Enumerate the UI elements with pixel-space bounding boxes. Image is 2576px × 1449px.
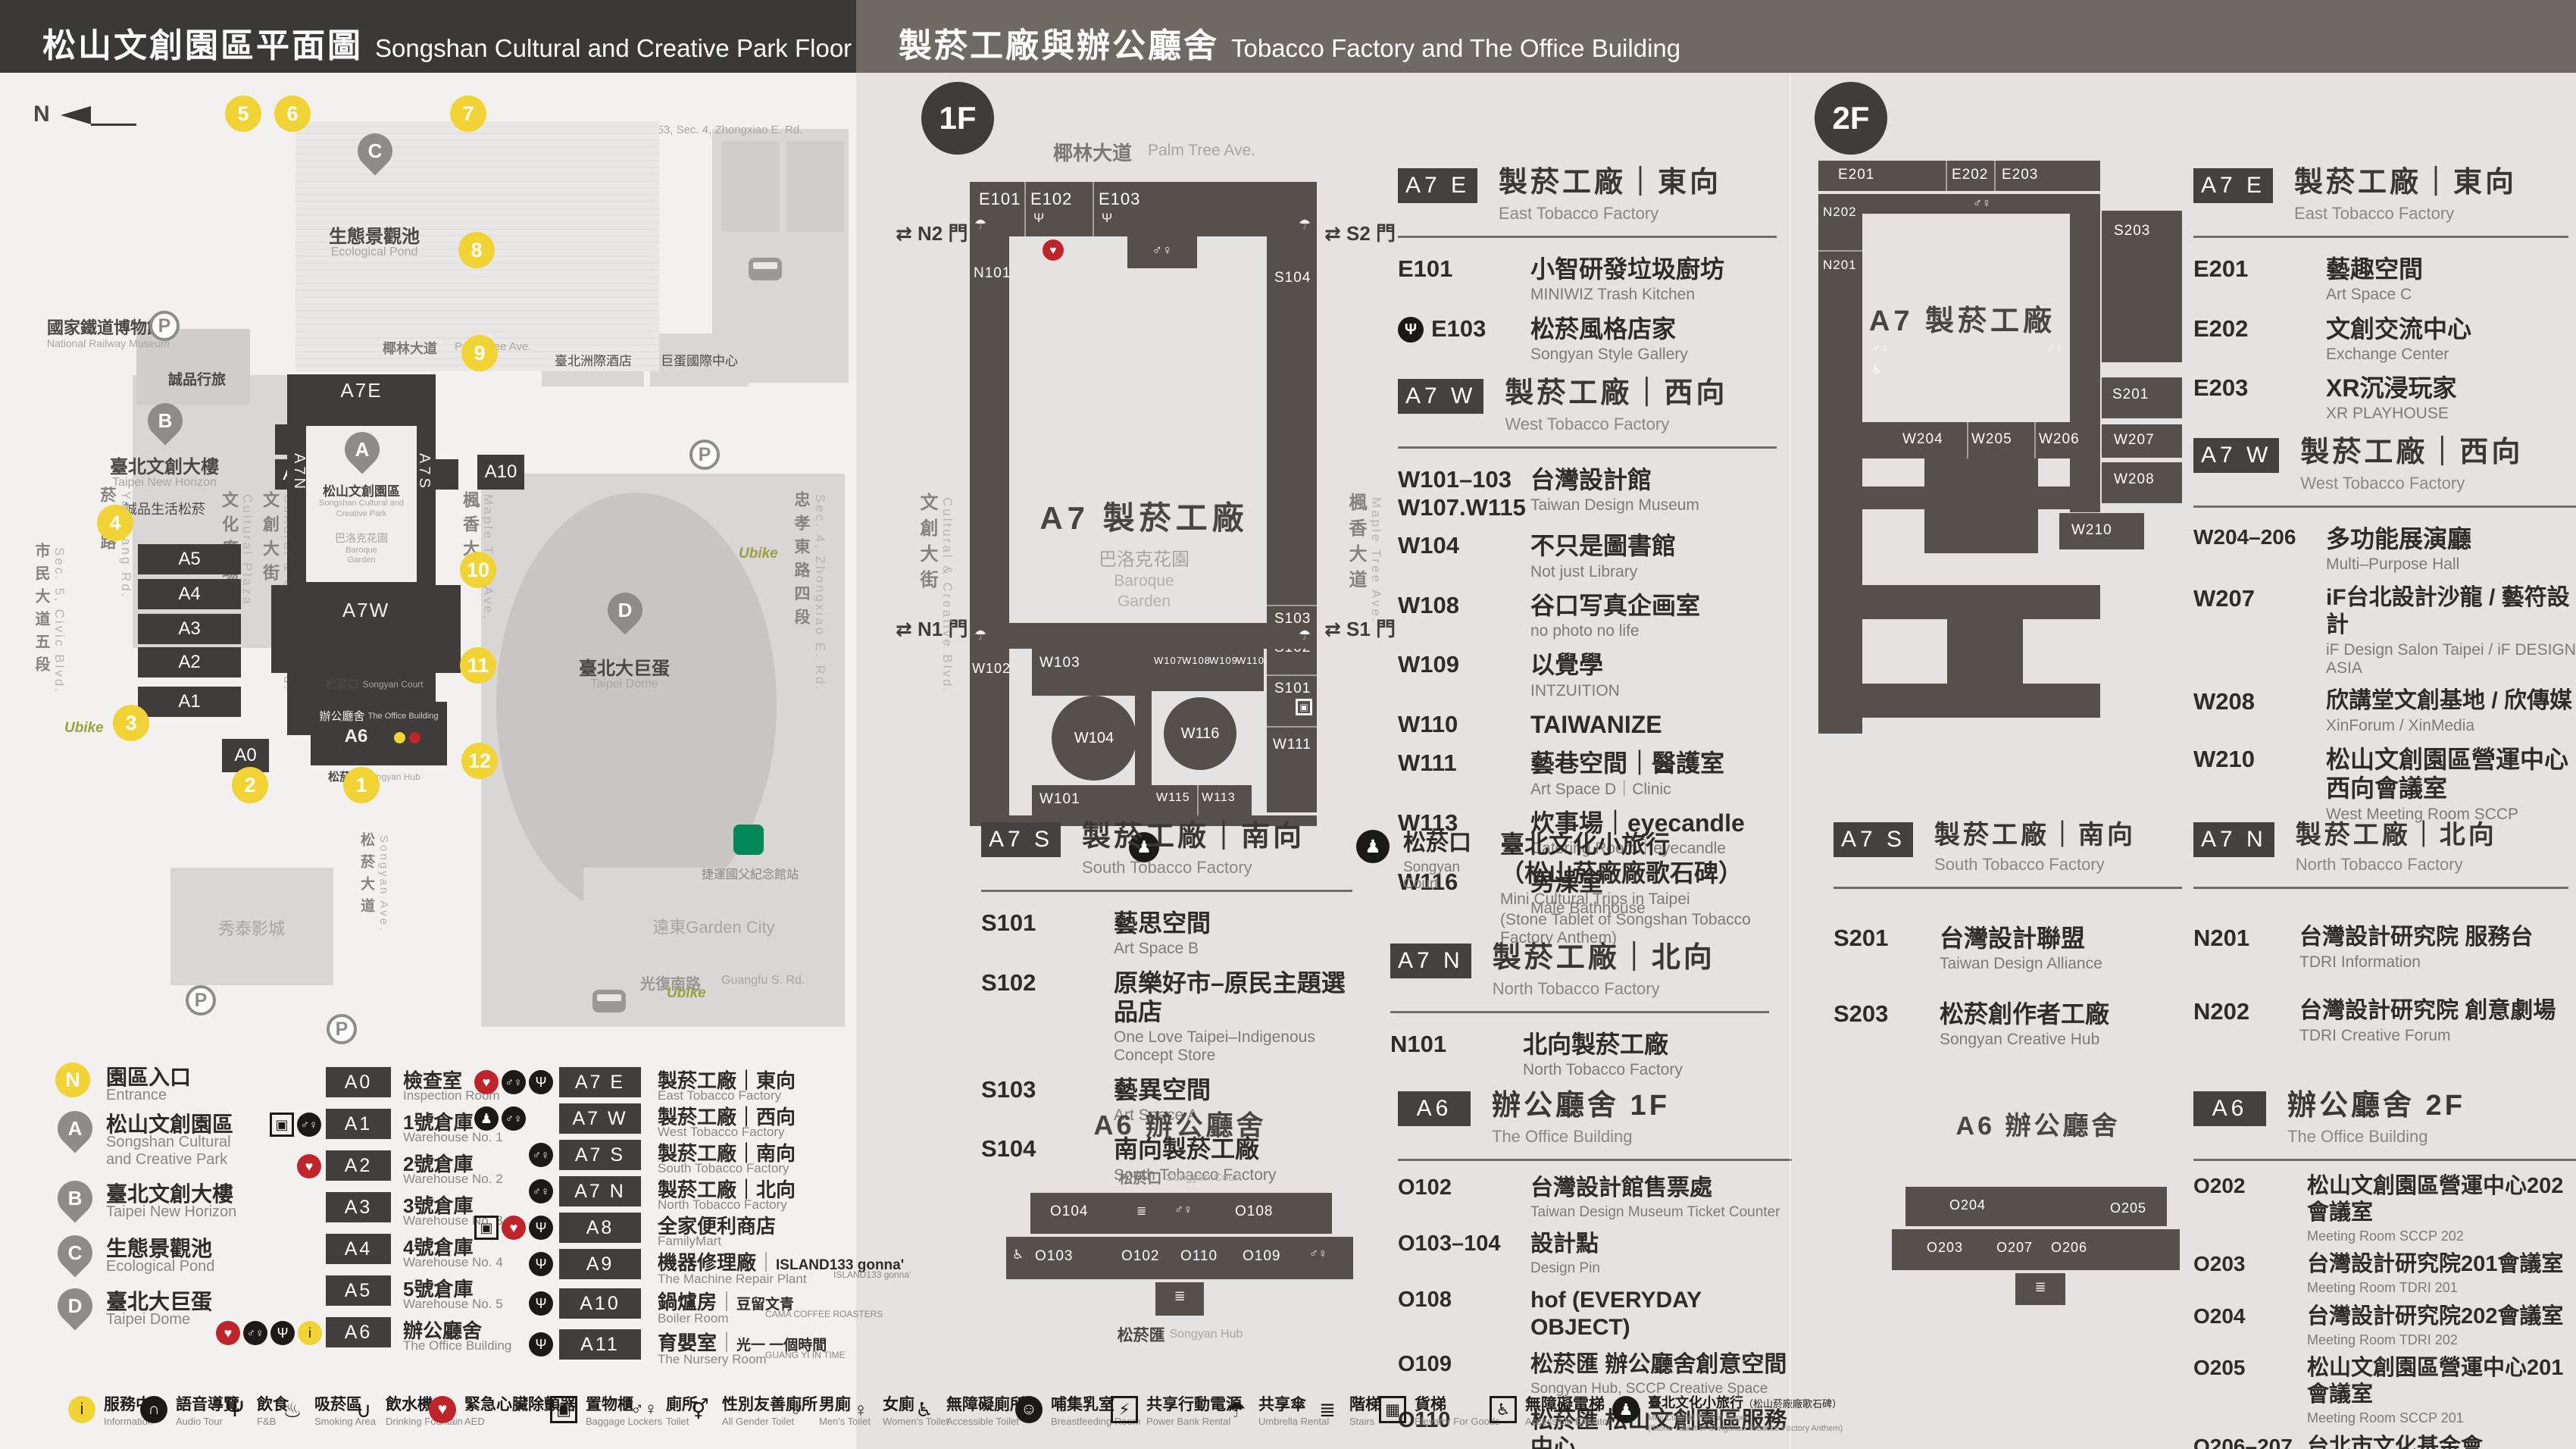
- legend-a7n-badge: A7 N: [559, 1176, 641, 1206]
- locker-icon: ▣: [270, 1113, 294, 1137]
- map-park-en2: Creative Park: [306, 509, 417, 518]
- ubike-icon: Ubike: [64, 720, 104, 737]
- entrance-5: 5: [225, 95, 261, 132]
- legend-pin-c: C: [50, 1228, 99, 1277]
- p1-center-label: A7 製菸工廠: [1015, 493, 1273, 539]
- city-building: [786, 141, 844, 232]
- legend-a5-badge: A5: [326, 1275, 391, 1306]
- room-w104: W104: [1052, 696, 1136, 781]
- legend-a6-badge: A6: [326, 1317, 391, 1347]
- umbrella-icon: ☂: [974, 217, 986, 233]
- power-bank-icon: ⚡: [1111, 1396, 1138, 1423]
- list-item: W210松山文創園區營運中心西向會議室West Meeting Room SCC…: [2193, 745, 2576, 824]
- section-zh: 製菸工廠｜西向: [2300, 438, 2523, 467]
- fnb-icon: Ψ: [1033, 211, 1044, 226]
- gate-s1: ⇄ S1 門: [1324, 614, 1396, 642]
- p1-blvd-zh: 文創大街: [914, 493, 940, 596]
- list-item: O206–207台北市文化基金會松山文創園區營運中心Taipei Culture…: [2193, 1434, 2576, 1449]
- entrance-1: 1: [343, 767, 380, 803]
- list-item: O205松山文創園區營運中心201會議室Meeting Room SCCP 20…: [2193, 1355, 2576, 1426]
- room-n202: N202: [1823, 205, 1857, 220]
- fnb-icon: Ψ: [221, 1396, 249, 1423]
- legend-a2-badge: A2: [326, 1150, 391, 1181]
- room-w103: W103: [1039, 655, 1080, 671]
- map-park-zh: 松山文創園區: [306, 480, 417, 499]
- room-w108: W108: [1182, 655, 1211, 666]
- entrance-2: 2: [232, 767, 268, 803]
- p2-lowest-bar: [1862, 684, 2100, 718]
- divider: [1093, 182, 1094, 236]
- room-o102: O102: [1121, 1248, 1159, 1265]
- section-2f-a7w: A7 W 製菸工廠｜西向West Tobacco Factory W204–20…: [2193, 438, 2576, 834]
- legend-a7s-badge: A7 S: [559, 1140, 641, 1170]
- p2-lower-bar: [1862, 585, 2100, 619]
- map-block-a5: A5: [138, 544, 241, 574]
- toilet-icon: ♂♀: [1309, 1247, 1327, 1261]
- toilet-icon: ♂♀: [529, 1179, 553, 1203]
- divider: [1024, 182, 1026, 236]
- compass-line: [91, 124, 136, 126]
- court-icon: ♟: [1356, 830, 1390, 863]
- dome-en: Taipei Dome: [549, 678, 700, 691]
- locker-icon: ▣: [474, 1216, 499, 1240]
- list-item: O202松山文創園區營運中心202會議室Meeting Room SCCP 20…: [2193, 1173, 2576, 1244]
- a6-court-strip: 松菸口 Songyan Court: [985, 1167, 1375, 1188]
- title-left-en: Songshan Cultural and Creative Park Floo…: [375, 34, 908, 62]
- legend-a8-en: FamilyMart: [658, 1234, 721, 1249]
- section-2f-a7n: A7 N 製菸工廠｜北向North Tobacco Factory N201台灣…: [2193, 822, 2568, 1055]
- section-badge: A7 N: [1390, 944, 1471, 978]
- cc-blvd-zh: 文創大街: [258, 491, 282, 588]
- map-block-a2: A2: [138, 647, 241, 678]
- section-header: A7 S 製菸工廠｜南向South Tobacco Factory: [1834, 822, 2182, 889]
- legend-a10-sub-en: CAMA COFFEE ROASTERS: [765, 1310, 883, 1320]
- list-item: N201台灣設計研究院 服務台TDRI Information: [2193, 924, 2568, 972]
- room-w102: W102: [972, 661, 1011, 677]
- plan1-palm-en: Palm Tree Ave.: [1148, 142, 1255, 160]
- pin-c: C: [350, 126, 399, 175]
- room-s104: S104: [1274, 270, 1311, 286]
- accessible-icon: ♿: [1871, 362, 1882, 377]
- divider: [1267, 605, 1317, 606]
- toilet-icon: ♂♀: [297, 1113, 321, 1137]
- section-badge: A7 W: [1398, 379, 1483, 414]
- room-e201: E201: [1838, 167, 1874, 183]
- divider: [1818, 250, 1862, 252]
- entrance-12: 12: [461, 743, 498, 779]
- section-zh: 製菸工廠｜南向: [1934, 822, 2136, 848]
- p1-baroque-en1: Baroque: [1015, 572, 1273, 590]
- men-icon: ♂: [783, 1396, 811, 1423]
- legend-a11-badge: A11: [559, 1329, 641, 1360]
- legend-a0-badge: A0: [326, 1067, 391, 1097]
- room-w115: W115: [1156, 791, 1190, 805]
- room-n101: N101: [974, 265, 1011, 282]
- p2-w205-interior: [1924, 458, 2038, 553]
- cultural-plaza-en: Cultural Plaza: [239, 494, 255, 606]
- map-a6-label: A6: [311, 726, 402, 747]
- court-title-en1: Mini Cultural Trips in Taipei: [1500, 890, 1780, 909]
- entrance-9: 9: [461, 335, 498, 371]
- section-en: North Tobacco Factory: [2296, 855, 2497, 875]
- section-badge: A7 S: [981, 822, 1061, 857]
- map-block-a10: A10: [477, 455, 524, 490]
- fnb-icon: Ψ: [529, 1332, 553, 1357]
- map-baroque-en1: Baroque: [306, 546, 417, 555]
- map-a7e-label: A7E: [287, 379, 436, 402]
- room-o104: O104: [1050, 1203, 1088, 1220]
- section-badge: A6: [2193, 1091, 2266, 1126]
- legend-a7e-en: East Tobacco Factory: [658, 1088, 781, 1103]
- list-item: S101藝思空間Art Space B: [981, 909, 1352, 959]
- legend-a7s-en: South Tobacco Factory: [658, 1161, 789, 1176]
- legend-pin-b: B: [50, 1173, 99, 1222]
- map-court-label: 松菸口 Songyan Court: [306, 676, 442, 692]
- p1-maple-zh: 楓香大道: [1343, 493, 1369, 596]
- p2-center-label: A7 製菸工廠: [1849, 297, 2076, 339]
- list-item: O108hof (EVERYDAY OBJECT): [1398, 1287, 1792, 1341]
- list-item: O109松菸匯 辦公廳舍創意空間Songyan Hub, SCCP Creati…: [1398, 1351, 1792, 1397]
- toilet-icon: ♂♀: [1174, 1203, 1193, 1217]
- accessible-icon: ♿: [1012, 1247, 1024, 1263]
- room-s203: S203: [2114, 223, 2150, 239]
- map-a6-office-zh: 辦公廳舍 The Office Building: [311, 708, 447, 724]
- room-w208: W208: [2114, 471, 2155, 488]
- court-icon: ♟: [1612, 1396, 1640, 1423]
- pin-a: A: [337, 424, 386, 474]
- section-badge: A6: [1398, 1091, 1471, 1126]
- list-item: S203松菸創作者工廠Songyan Creative Hub: [1834, 1000, 2182, 1050]
- a6-plan-title: A6 辦公廳舍: [985, 1103, 1375, 1143]
- legend-pin-c-en: Ecological Pond: [106, 1258, 250, 1275]
- section-badge: A7 N: [2193, 822, 2274, 857]
- p1-baroque-en2: Garden: [1015, 593, 1273, 611]
- section-en: The Office Building: [2287, 1127, 2465, 1147]
- room-w107: W107: [1154, 655, 1183, 666]
- toilet-icon: ♂♀: [1871, 343, 1890, 356]
- list-item: S102原樂好市–原民主題選品店One Love Taipei–Indigeno…: [981, 969, 1352, 1066]
- section-en: South Tobacco Factory: [1934, 855, 2136, 875]
- railway-museum-zh: 國家鐵道博物館: [47, 315, 164, 339]
- legend-pin-a-en: Songshan Cultural and Creative Park: [106, 1134, 242, 1169]
- legend-a7w-en: West Tobacco Factory: [658, 1125, 785, 1140]
- aed-icon: ♥: [429, 1396, 456, 1423]
- floor-plan-poster: 松山文創園區平面圖Songshan Cultural and Creative …: [0, 0, 2576, 1449]
- p2-left-wing: [1818, 194, 1862, 734]
- list-item: W110TAIWANIZE: [1398, 710, 1777, 739]
- new-horizon-zh: 臺北文創大樓: [89, 452, 240, 478]
- entrance-10: 10: [460, 552, 496, 588]
- stairs-icon: ≣: [1155, 1288, 1204, 1304]
- legend-entrance-en: Entrance: [106, 1087, 167, 1104]
- room-w110: W110: [1236, 655, 1265, 666]
- section-en: North Tobacco Factory: [1493, 979, 1715, 999]
- list-item: W109以覺學INTZUITION: [1398, 650, 1777, 700]
- legend-a11-sub-en: GUANG YI IN TIME: [765, 1350, 846, 1361]
- legend-a7w-badge: A7 W: [559, 1103, 641, 1134]
- legend-a4-badge: A4: [326, 1234, 391, 1264]
- mrt-logo-icon: [733, 825, 764, 855]
- toilet-icon: ♂♀: [529, 1143, 553, 1167]
- a6-plan2-title: A6 辦公廳舍: [1883, 1105, 2193, 1142]
- room-o110: O110: [1180, 1248, 1218, 1265]
- zhongxiao-zh: 忠孝東路四段: [789, 491, 812, 632]
- floorplan-2f: E201 E202 E203 N202 N201 S203 S201 W207 …: [1818, 161, 2182, 734]
- list-item: E201藝趣空間Art Space C: [2193, 255, 2568, 305]
- court-zh: 松菸口: [1403, 830, 1487, 857]
- section-zh: 製菸工廠｜北向: [1493, 944, 1715, 972]
- section-header: A7 W 製菸工廠｜西向West Tobacco Factory: [2193, 438, 2576, 508]
- eslite-hotel-label: 誠品行旅: [168, 368, 226, 389]
- divider: [1790, 73, 1791, 1449]
- p1-baroque-zh: 巴洛克花園: [1015, 544, 1273, 571]
- legend-a3-badge: A3: [326, 1192, 391, 1222]
- section-zh: 製菸工廠｜北向: [2296, 822, 2497, 848]
- legend-a10-badge: A10: [559, 1288, 641, 1319]
- room-e103: E103: [1099, 189, 1140, 209]
- aed-icon: ♥: [297, 1154, 321, 1178]
- p1-maple-en: Maple Tree Ave.: [1368, 497, 1383, 624]
- room-o207: O207: [1996, 1240, 2033, 1256]
- room-e101: E101: [979, 189, 1021, 209]
- map-a7n-label: A7N: [290, 453, 308, 492]
- floor-badge-2f: 2F: [1815, 82, 1887, 155]
- gate-s2: ⇄ S2 門: [1324, 218, 1396, 246]
- fnb-icon: Ψ: [1102, 211, 1112, 226]
- p1-top-bar: [970, 182, 1317, 236]
- section-en: The Office Building: [1492, 1127, 1670, 1147]
- legend-a7n-en: North Tobacco Factory: [658, 1197, 787, 1213]
- list-item: O102台灣設計館售票處Taiwan Design Museum Ticket …: [1398, 1175, 1792, 1221]
- section-zh: 辦公廳舍 1F: [1492, 1091, 1670, 1120]
- section-en: West Tobacco Factory: [1505, 415, 1727, 434]
- stairs-icon: ≣: [1314, 1396, 1341, 1423]
- court-title-zh1: 臺北文化小旅行: [1500, 830, 1780, 859]
- map-block-a3: A3: [138, 614, 241, 644]
- court-icon: ♟: [474, 1106, 499, 1131]
- legend-a9-badge: A9: [559, 1249, 641, 1279]
- section-2f-a7e: A7 E 製菸工廠｜東向East Tobacco Factory E201藝趣空…: [2193, 168, 2568, 433]
- entrance-3: 3: [113, 705, 149, 741]
- toilet-icon: ♂♀: [630, 1396, 658, 1423]
- map-park-en1: Songshan Cultural and: [306, 499, 417, 508]
- goods-elevator-icon: ▦: [1379, 1396, 1406, 1423]
- room-s101: S101: [1274, 681, 1311, 697]
- list-item: W208欣講堂文創基地 / 欣傳媒XinForum / XinMedia: [2193, 687, 2576, 735]
- parking-icon: P: [327, 1014, 357, 1044]
- legend-a2-en: Warehouse No. 2: [403, 1172, 503, 1187]
- accessible-icon: ♿: [911, 1396, 938, 1423]
- header-right: 製菸工廠與辦公廳舍Tobacco Factory and The Office …: [856, 0, 2576, 73]
- facility-accessible-toilet: ♿無障礙廁所Accessible Toilet: [911, 1396, 1026, 1428]
- floor-badge-1f: 1F: [921, 82, 994, 155]
- section-1f-a7e: A7 E 製菸工廠｜東向East Tobacco Factory E101小智研…: [1398, 168, 1777, 374]
- allgender-icon: ⚥: [686, 1396, 714, 1423]
- pin-b: B: [140, 396, 189, 445]
- fnb-icon: Ψ: [529, 1216, 553, 1240]
- divider: [1267, 726, 1317, 728]
- facility-stairs: ≣階梯Stairs: [1314, 1396, 1381, 1428]
- fnb-icon: Ψ: [529, 1070, 553, 1094]
- section-zh: 製菸工廠｜西向: [1505, 379, 1727, 408]
- divider: [1946, 161, 1947, 191]
- list-item: S201台灣設計聯盟Taiwan Design Alliance: [1834, 924, 2182, 974]
- section-2f-a7s: A7 S 製菸工廠｜南向South Tobacco Factory S201台灣…: [1834, 822, 2182, 1059]
- section-en: West Tobacco Factory: [2300, 474, 2523, 493]
- room-w101: W101: [1039, 791, 1080, 808]
- toilet-icon: ♂♀: [502, 1106, 526, 1131]
- p2-lower-pocket: [1947, 619, 2023, 684]
- entrance-6: 6: [274, 95, 311, 132]
- list-item: E203XR沉浸玩家XR PLAYHOUSE: [2193, 374, 2568, 424]
- list-item: W111藝巷空間｜醫護室Art Space D｜Clinic: [1398, 749, 1777, 799]
- compass-label: N: [33, 102, 50, 127]
- stairs-icon: ≣: [2015, 1279, 2065, 1295]
- room-w113: W113: [1202, 791, 1236, 805]
- guangfu-en: Guangfu S. Rd.: [721, 974, 805, 987]
- parking-icon: P: [149, 311, 180, 341]
- section-header: A6 辦公廳舍 1FThe Office Building: [1398, 1091, 1792, 1161]
- room-o204: O204: [1949, 1197, 1986, 1213]
- hotel-icc-label: 臺北洲際酒店: [547, 350, 639, 369]
- toilet-icon: ♂♀: [1947, 197, 2017, 211]
- list-item: W104不只是圖書館Not just Library: [1398, 531, 1777, 581]
- aed-icon: ♥: [1043, 239, 1064, 261]
- room-o108: O108: [1235, 1203, 1273, 1220]
- aed-icon: ♥: [474, 1070, 499, 1094]
- songyan-ave-zh: 松菸大道: [356, 832, 377, 920]
- room-w205: W205: [1971, 431, 2012, 448]
- room-w207: W207: [2114, 432, 2155, 449]
- legend-a9-en: The Machine Repair Plant: [658, 1272, 807, 1287]
- railway-museum-en: National Railway Museum: [47, 337, 170, 349]
- room-e203: E203: [2002, 167, 2038, 183]
- a6-hub-label: 松菸匯 Songyan Hub: [985, 1323, 1375, 1346]
- ubike-icon: Ubike: [667, 985, 706, 1002]
- facility-accessible-elevator: ♿無障礙電梯Accessible Elevator: [1490, 1396, 1611, 1428]
- map-block-a1: A1: [138, 687, 241, 717]
- section-en: East Tobacco Factory: [2294, 204, 2517, 224]
- divider: [1994, 161, 1996, 191]
- map-block-a4: A4: [138, 579, 241, 609]
- section-header: A7 W 製菸工廠｜西向West Tobacco Factory: [1398, 379, 1777, 449]
- women-icon: ♀: [847, 1396, 874, 1423]
- umbrella-icon: ☂: [974, 627, 986, 643]
- legend-a5-en: Warehouse No. 5: [403, 1297, 503, 1312]
- toilet-icon: ♂♀: [1127, 243, 1197, 258]
- section-header: A7 E 製菸工廠｜東向East Tobacco Factory: [1398, 168, 1777, 238]
- fnb-icon: Ψ: [1398, 317, 1424, 343]
- aed-icon: ♥: [502, 1216, 526, 1240]
- room-e202: E202: [1952, 167, 1988, 183]
- room-w111: W111: [1273, 737, 1311, 753]
- entrance-7: 7: [450, 95, 486, 132]
- parking-icon: P: [186, 985, 216, 1016]
- locker-icon: ▣: [550, 1396, 577, 1423]
- p1-blvd-en: Cultural & Creative Blvd.: [939, 497, 955, 694]
- p1-connector: [1135, 649, 1152, 823]
- map-a6-aed-icon: [409, 732, 420, 743]
- legend-a1-badge: A1: [326, 1109, 391, 1139]
- section-badge: A7 S: [1834, 822, 1913, 857]
- fnb-icon: Ψ: [529, 1252, 553, 1276]
- section-header: A7 N 製菸工廠｜北向North Tobacco Factory: [2193, 822, 2568, 889]
- legend-a9-sub-en: ISLAND133 gonna': [833, 1270, 911, 1281]
- section-zh: 製菸工廠｜東向: [1499, 168, 1721, 197]
- gate-n1: ⇄ N1 門: [896, 614, 968, 642]
- legend-a7e-badge: A7 E: [559, 1067, 641, 1097]
- room-o109: O109: [1243, 1248, 1280, 1265]
- accessible-elevator-icon: ♿: [1490, 1396, 1517, 1423]
- room-w204: W204: [1902, 431, 1943, 448]
- map-baroque-zh: 巴洛克花園: [306, 530, 417, 546]
- room-o103: O103: [1035, 1248, 1073, 1265]
- pin-d: D: [600, 585, 649, 634]
- fnb-icon: Ψ: [270, 1321, 295, 1345]
- audio-icon: ∩: [140, 1396, 167, 1423]
- p2-ring-right: [2070, 194, 2100, 512]
- map-a7s-label: A7S: [415, 453, 433, 491]
- entrance-4: 4: [97, 505, 133, 541]
- fac19-zh: 臺北文化小旅行（松山菸廠廠歌石碑）: [1648, 1396, 1843, 1411]
- divider: [1267, 674, 1317, 676]
- mrt-station-label: 捷運國父紀念館站: [686, 864, 814, 882]
- court-en: Songyan Court: [1403, 859, 1487, 893]
- section-badge: A7 W: [2193, 438, 2279, 473]
- section-header: A7 E 製菸工廠｜東向East Tobacco Factory: [2193, 168, 2568, 238]
- parking-icon: P: [689, 440, 720, 470]
- divider: [2034, 422, 2036, 458]
- page-title-right: 製菸工廠與辦公廳舍Tobacco Factory and The Office …: [899, 18, 1680, 67]
- zhongxiao-en: Sec. 4, Zhongxiao E. Rd.: [812, 494, 827, 692]
- section-badge: A7 E: [1398, 168, 1477, 203]
- divider: [1967, 422, 1968, 458]
- room-w116: W116: [1164, 697, 1236, 770]
- umbrella-icon: ☂: [1299, 627, 1311, 643]
- list-item: W101–103W107.W115台灣設計館Taiwan Design Muse…: [1398, 465, 1777, 521]
- room-w210: W210: [2071, 522, 2112, 539]
- list-item: E202文創交流中心Exchange Center: [2193, 315, 2568, 365]
- legend-a11-en: The Nursery Room: [658, 1352, 767, 1367]
- map-a6-info-icon: [394, 732, 405, 743]
- taipei-dome-ellipse: [496, 493, 777, 917]
- section-en: East Tobacco Factory: [1499, 204, 1721, 224]
- showtime-label: 秀泰影城: [176, 915, 327, 940]
- room-s201: S201: [2112, 387, 2149, 403]
- list-item: O204台灣設計研究院202會議室Meeting Room TDRI 202: [2193, 1303, 2576, 1347]
- list-item: N101北向製菸工廠North Tobacco Factory: [1390, 1030, 1769, 1080]
- compass-arrow-icon: [61, 106, 91, 124]
- list-item: O203台灣設計研究院201會議室Meeting Room TDRI 201: [2193, 1251, 2576, 1295]
- palm-ave-zh: 椰林大道: [383, 338, 437, 358]
- a6-plan-2f: A6 辦公廳舍 O204 O205 O203 O207 O206 ≣: [1883, 1097, 2193, 1359]
- room-n201: N201: [1823, 258, 1857, 273]
- room-e102: E102: [1030, 189, 1072, 209]
- legend-a10-en: Boiler Room: [658, 1311, 729, 1326]
- toilet-icon: ♂♀: [502, 1070, 526, 1094]
- gardencity-label: 遠東Garden City: [585, 914, 843, 938]
- civic-blvd-en: Sec. 5, Civic Blvd.: [52, 547, 67, 694]
- section-badge: A7 E: [2193, 168, 2273, 203]
- section-zh: 製菸工廠｜東向: [2294, 168, 2517, 197]
- court-title-zh2: （松山菸廠廠歌石碑）: [1500, 859, 1780, 887]
- facility-goods-elevator: ▦貨梯Elevator For Goods: [1379, 1396, 1500, 1428]
- info-icon: i: [68, 1396, 95, 1423]
- title-right-en: Tobacco Factory and The Office Building: [1231, 34, 1680, 62]
- list-item: ΨE103松菸風格店家Songyan Style Gallery: [1398, 315, 1777, 365]
- gate-n2: ⇄ N2 門: [896, 218, 968, 246]
- list-item: N202台灣設計研究院 創意劇場TDRI Creative Forum: [2193, 997, 2568, 1045]
